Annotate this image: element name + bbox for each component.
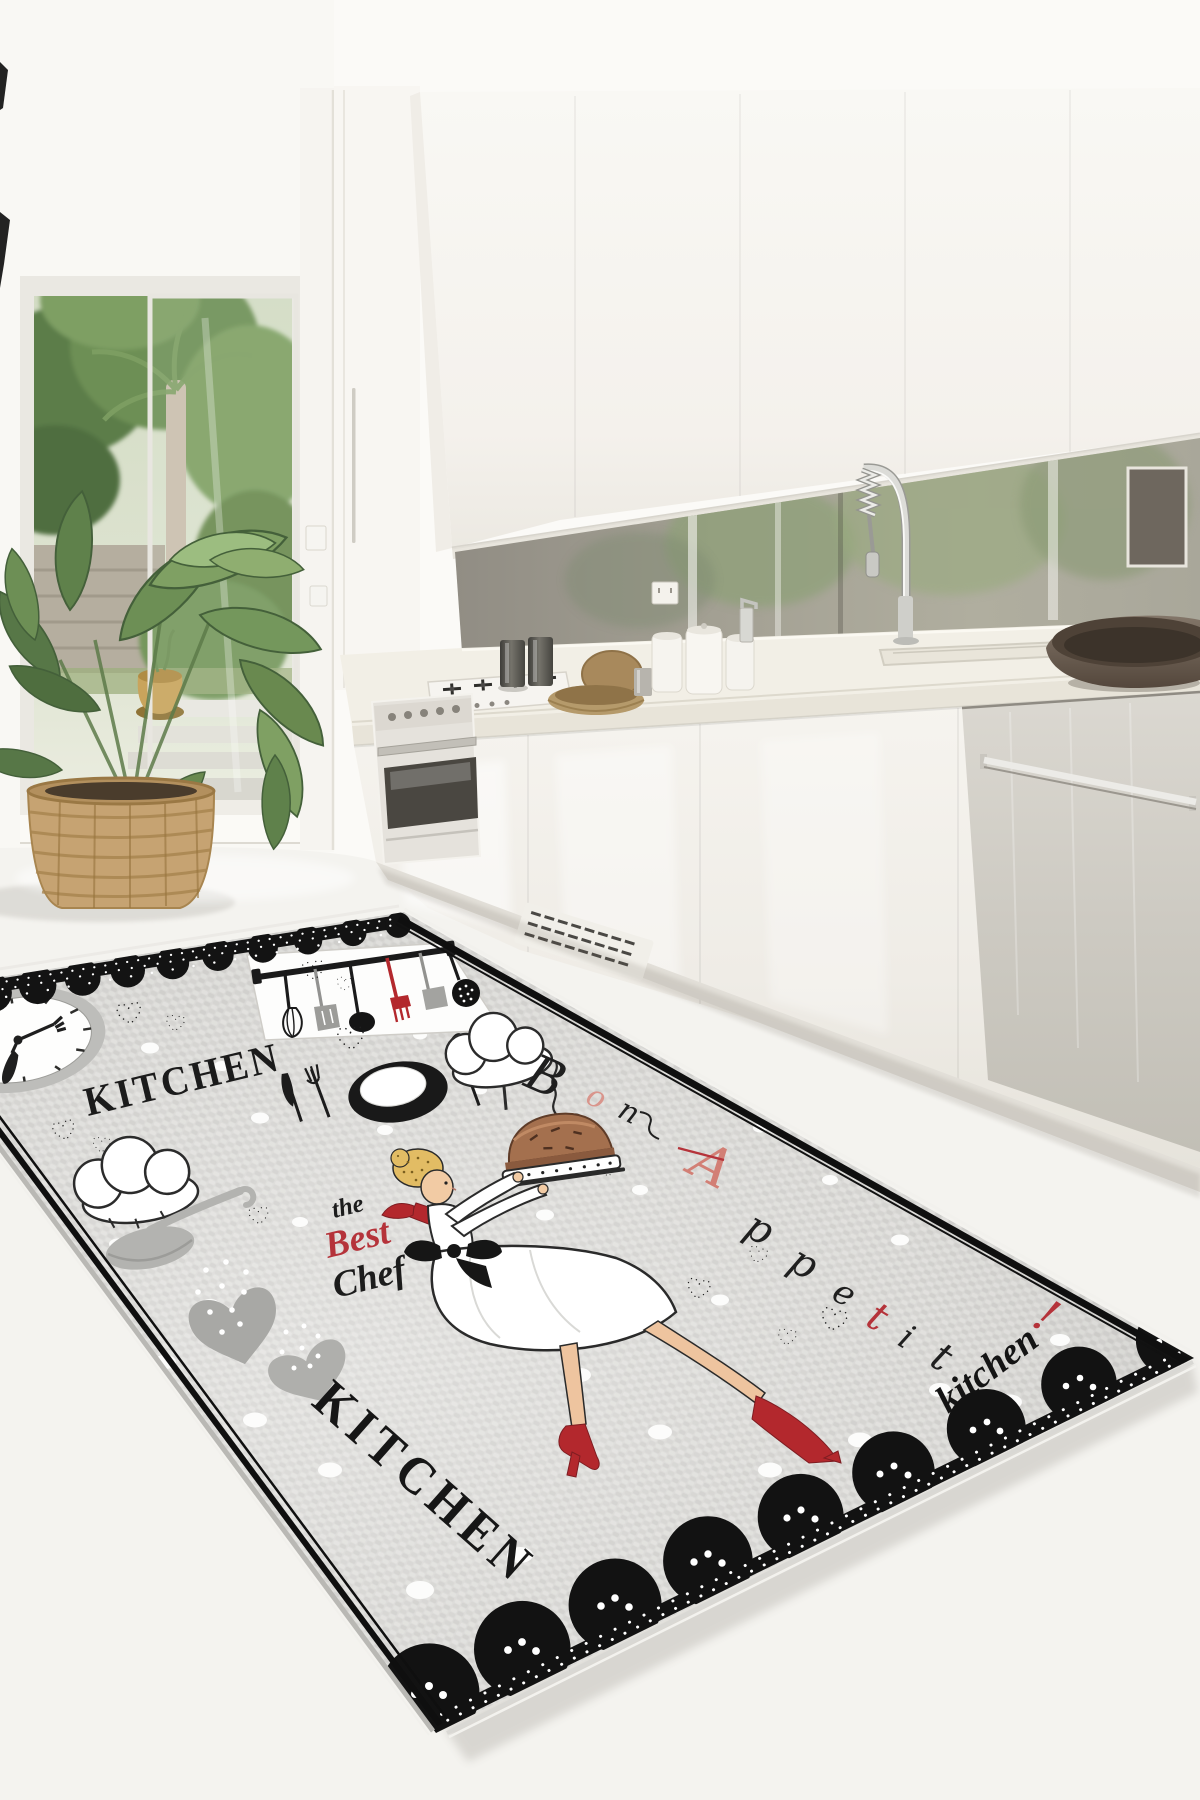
kitchen-product-photo: Chef-themed gray decorative kitchen rug …	[0, 0, 1200, 1800]
framed-art-reflection	[1128, 468, 1186, 566]
steel-canister	[634, 668, 652, 696]
power-outlet	[652, 582, 678, 604]
chef-face	[421, 1170, 453, 1204]
wooden-bowl	[548, 685, 644, 715]
tall-cabinet	[334, 86, 420, 690]
plant-basket	[28, 778, 214, 908]
faucet-sprayer	[866, 552, 879, 577]
tall-cabinet-handle	[352, 388, 356, 543]
oven	[372, 694, 480, 864]
dishwasher	[962, 692, 1200, 1152]
